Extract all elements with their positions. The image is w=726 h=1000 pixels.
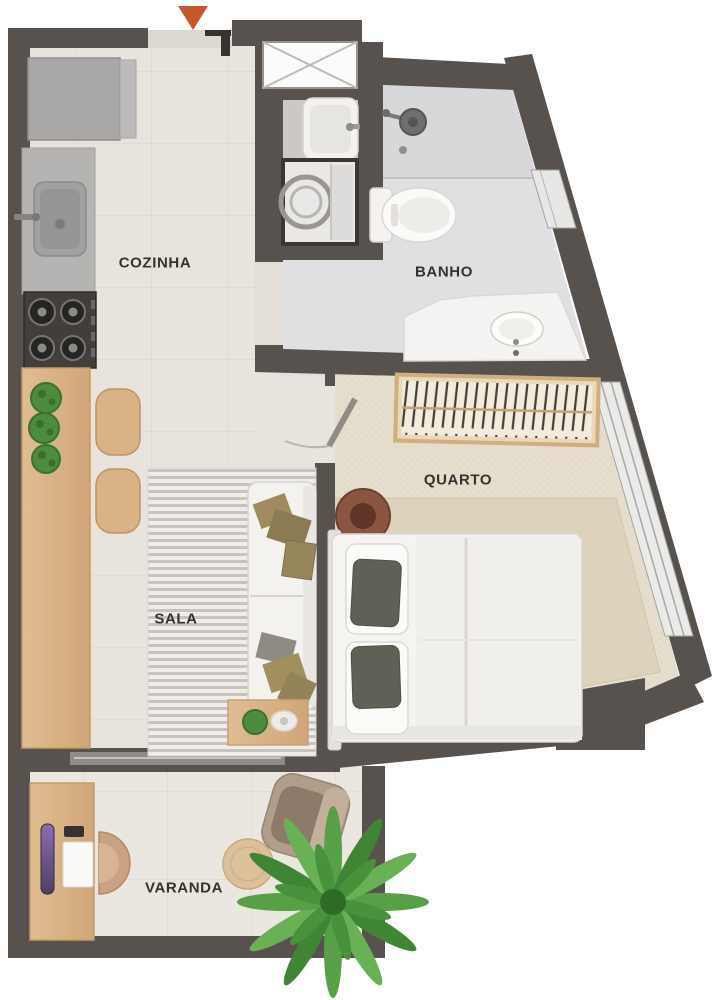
entry-door-leaf xyxy=(221,30,230,56)
floor-plan-svg xyxy=(0,0,726,1000)
washing-machine xyxy=(281,160,357,244)
room-label-sala: SALA xyxy=(154,611,197,628)
cabinet-panel xyxy=(120,60,136,138)
room-label-cozinha: COZINHA xyxy=(119,255,192,272)
coffee-table xyxy=(228,700,308,745)
faucet-icon xyxy=(513,350,519,356)
faucet-icon xyxy=(346,123,354,131)
floor-plan: COZINHA BANHO QUARTO SALA VARANDA xyxy=(0,0,726,1000)
herb-plants xyxy=(29,383,61,473)
pillow xyxy=(282,540,317,580)
room-label-quarto: QUARTO xyxy=(424,472,492,489)
service-shaft xyxy=(263,42,357,88)
laundry-sink xyxy=(303,98,360,160)
quarto-door-jamb xyxy=(325,372,335,386)
phone-icon xyxy=(64,826,84,837)
accent-pillow xyxy=(351,645,401,709)
toilet xyxy=(370,188,456,242)
cooktop xyxy=(24,292,96,368)
refrigerator xyxy=(28,58,120,140)
entrance-arrow-icon xyxy=(178,6,208,30)
monitor xyxy=(41,824,54,894)
accent-pillow xyxy=(350,559,401,627)
floor-corridor xyxy=(255,372,340,470)
open-wardrobe xyxy=(395,375,599,446)
plant-icon xyxy=(32,445,60,473)
room-label-banho: BANHO xyxy=(415,264,473,281)
bath-door-threshold xyxy=(255,262,283,345)
plant-icon xyxy=(243,710,267,734)
sofa xyxy=(248,482,317,711)
plant-icon xyxy=(29,413,59,443)
notebook xyxy=(63,842,93,887)
duvet xyxy=(416,536,580,740)
bar-stool xyxy=(96,469,140,533)
bar-stool xyxy=(96,389,140,455)
room-label-varanda: VARANDA xyxy=(145,880,223,897)
double-bed xyxy=(328,530,582,750)
wall-top-left xyxy=(8,28,148,48)
plant-icon xyxy=(31,383,61,413)
